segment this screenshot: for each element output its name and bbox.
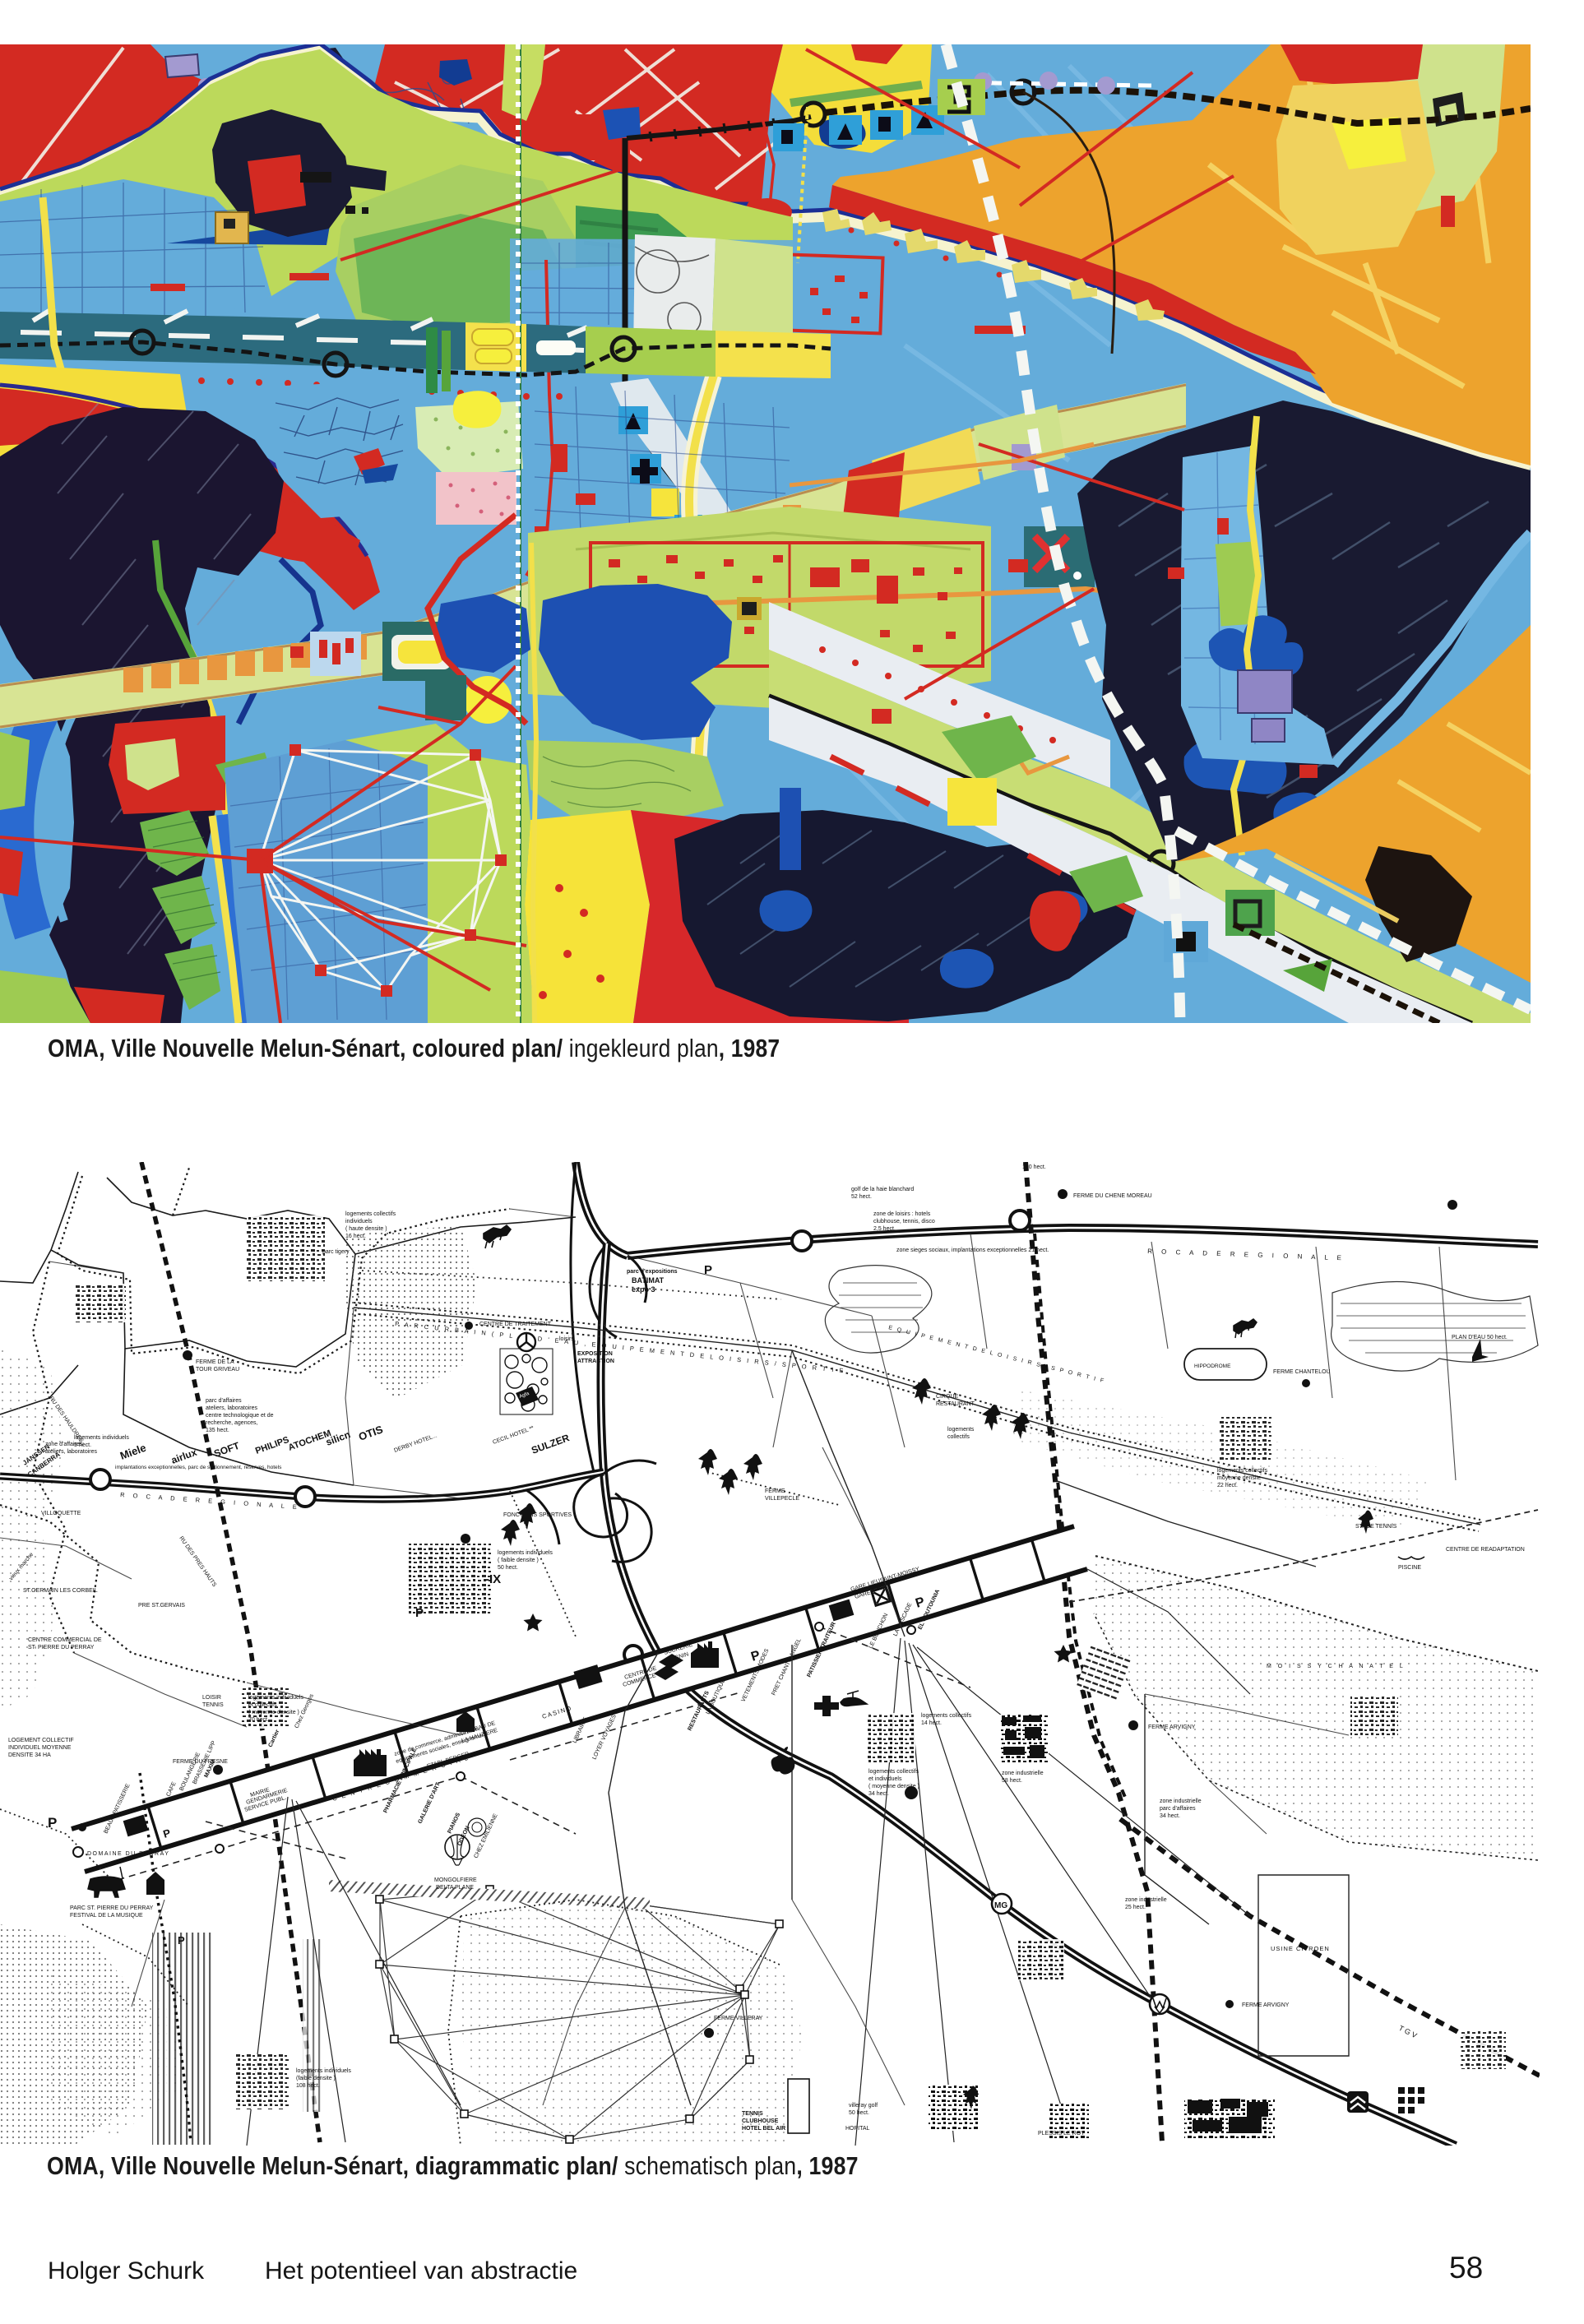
svg-text:52 hect.: 52 hect. <box>851 1194 872 1200</box>
svg-text:58 hect.: 58 hect. <box>1002 1778 1022 1784</box>
svg-text:logements collectifs: logements collectifs <box>921 1713 972 1719</box>
svg-text:VILLEPECLE: VILLEPECLE <box>765 1496 799 1502</box>
svg-text:golf de la haie blanchard: golf de la haie blanchard <box>851 1187 914 1192</box>
svg-text:clubhouse, tennis, disco: clubhouse, tennis, disco <box>873 1219 935 1224</box>
svg-text:et individuels: et individuels <box>868 1776 902 1782</box>
svg-text:( moyenne densite ): ( moyenne densite ) <box>248 1710 299 1715</box>
svg-text:TENNIS: TENNIS <box>202 1702 224 1708</box>
svg-text:( haute densite ): ( haute densite ) <box>345 1226 387 1232</box>
svg-text:34 hect.: 34 hect. <box>868 1791 889 1797</box>
svg-text:parc d'affaires: parc d'affaires <box>206 1398 242 1404</box>
svg-text:ateliers, laboratoires: ateliers, laboratoires <box>206 1405 258 1411</box>
svg-text:DOMAINE DU PERRAY: DOMAINE DU PERRAY <box>87 1851 169 1857</box>
svg-text:CIRQUE: CIRQUE <box>936 1394 959 1400</box>
svg-text:moyenne densite: moyenne densite <box>1217 1475 1261 1481</box>
svg-text:loisirs: loisirs <box>559 1336 574 1342</box>
svg-text:HOPITAL: HOPITAL <box>845 2126 870 2132</box>
svg-text:HOTEL BEL AIR ***: HOTEL BEL AIR *** <box>742 2126 794 2132</box>
svg-text:logements individuels: logements individuels <box>296 2068 351 2074</box>
svg-text:M O I S S Y C H A N A T E L: M O I S S Y C H A N A T E L <box>1267 1664 1406 1669</box>
svg-text:INDIVIDUEL MOYENNE: INDIVIDUEL MOYENNE <box>8 1745 72 1751</box>
svg-text:centre technologique et de: centre technologique et de <box>206 1413 274 1419</box>
svg-text:EXPOSITION: EXPOSITION <box>577 1351 613 1357</box>
svg-text:DELTA PLANE: DELTA PLANE <box>436 1885 474 1891</box>
svg-text:PISCINE: PISCINE <box>1398 1565 1421 1571</box>
svg-text:FERME DE LA: FERME DE LA <box>196 1359 234 1365</box>
svg-text:logements collectifs: logements collectifs <box>868 1769 919 1775</box>
svg-text:34 hect.: 34 hect. <box>1160 1813 1180 1819</box>
svg-text:14 hect.: 14 hect. <box>921 1720 942 1726</box>
svg-text:PARC ST. PIERRE DU PERRAY: PARC ST. PIERRE DU PERRAY <box>70 1905 154 1911</box>
svg-text:DENSITE 34 HA: DENSITE 34 HA <box>8 1752 51 1758</box>
svg-text:parc d'expositions: parc d'expositions <box>627 1269 678 1275</box>
svg-text:FERME DU FRESNE: FERME DU FRESNE <box>173 1759 228 1765</box>
svg-text:FERME CHANTELOU: FERME CHANTELOU <box>1273 1369 1331 1375</box>
svg-text:ateliers, laboratoires: ateliers, laboratoires <box>45 1449 98 1455</box>
svg-text:25 hect.: 25 hect. <box>1125 1905 1146 1910</box>
svg-text:parc d'affaires: parc d'affaires <box>1160 1806 1196 1812</box>
svg-text:FONCTIONS SPORTIVES: FONCTIONS SPORTIVES <box>503 1512 572 1518</box>
svg-text:HIPPODROME: HIPPODROME <box>1194 1363 1231 1369</box>
svg-text:ST.GERMAIN LES CORBEIL: ST.GERMAIN LES CORBEIL <box>23 1588 98 1594</box>
svg-text:FERME DU CHENE MOREAU: FERME DU CHENE MOREAU <box>1073 1193 1152 1199</box>
svg-text:VILLOQUETTE: VILLOQUETTE <box>41 1511 81 1516</box>
svg-text:MONGOLFIERE: MONGOLFIERE <box>434 1877 477 1883</box>
svg-text:LOGEMENT COLLECTIF: LOGEMENT COLLECTIF <box>8 1738 74 1743</box>
svg-text:PLAN D'EAU 50 hect.: PLAN D'EAU 50 hect. <box>1452 1335 1508 1340</box>
svg-text:FERME ARVIGNY: FERME ARVIGNY <box>1242 2002 1290 2008</box>
svg-text:CENTRE DE TRAITEMENT: CENTRE DE TRAITEMENT <box>479 1322 552 1327</box>
svg-text:PRE ST.GERVAIS: PRE ST.GERVAIS <box>138 1603 185 1609</box>
svg-text:collectifs: collectifs <box>947 1434 970 1440</box>
svg-text:USINE CITROEN: USINE CITROEN <box>1271 1945 1330 1952</box>
svg-text:villeray golf: villeray golf <box>849 2103 878 2109</box>
svg-text:PLESSIS LE ROY: PLESSIS LE ROY <box>1038 2131 1085 2137</box>
svg-text:TOUR GRIVEAU: TOUR GRIVEAU <box>196 1367 239 1373</box>
svg-text:108 hect.: 108 hect. <box>296 2083 320 2089</box>
svg-text:MG: MG <box>994 1901 1007 1910</box>
svg-text:FERME ARVIGNY: FERME ARVIGNY <box>1148 1724 1196 1730</box>
svg-text:22 hect.: 22 hect. <box>1217 1483 1238 1488</box>
svg-text:( moyenne densite ): ( moyenne densite ) <box>868 1784 919 1789</box>
svg-text:50 hect.: 50 hect. <box>498 1565 518 1571</box>
svg-text:2,5 hect.: 2,5 hect. <box>873 1226 896 1232</box>
svg-text:100 hect.: 100 hect. <box>1022 1164 1046 1170</box>
svg-text:135 hect.: 135 hect. <box>206 1428 229 1433</box>
svg-text:logements collectifs: logements collectifs <box>345 1211 396 1217</box>
svg-text:RESTAURANT: RESTAURANT <box>936 1401 975 1407</box>
svg-text:parc tigery: parc tigery <box>322 1249 350 1255</box>
svg-text:CLUBHOUSE: CLUBHOUSE <box>742 2118 779 2124</box>
svg-text:16 hect.: 16 hect. <box>345 1234 366 1239</box>
svg-text:zone de loisirs : hotels: zone de loisirs : hotels <box>873 1211 931 1217</box>
svg-text:-IX: -IX <box>485 1572 501 1586</box>
svg-text:ATTRACTION: ATTRACTION <box>577 1359 614 1364</box>
svg-text:recherche, agences,: recherche, agences, <box>206 1420 257 1426</box>
svg-text:CENTRE DE READAPTATION: CENTRE DE READAPTATION <box>1446 1547 1525 1553</box>
svg-text:zone industrielle: zone industrielle <box>1160 1799 1202 1804</box>
svg-text:zone industrielle: zone industrielle <box>1002 1771 1044 1776</box>
svg-text:70 hect.: 70 hect. <box>248 1717 269 1723</box>
svg-text:FESTIVAL DE LA MUSIQUE: FESTIVAL DE LA MUSIQUE <box>70 1913 143 1919</box>
svg-text:individuels: individuels <box>345 1219 373 1224</box>
svg-text:logements: logements <box>947 1427 975 1433</box>
svg-text:logements collectifs: logements collectifs <box>1217 1468 1268 1474</box>
svg-text:logements individuels: logements individuels <box>498 1550 553 1556</box>
svg-text:expo 3: expo 3 <box>632 1285 655 1294</box>
svg-text:zone industrielle: zone industrielle <box>1125 1897 1167 1903</box>
svg-text:TENNIS: TENNIS <box>742 2111 763 2117</box>
svg-text:5 hect.: 5 hect. <box>74 1442 91 1448</box>
svg-text:FERME VILLERAY: FERME VILLERAY <box>714 2016 763 2021</box>
svg-text:BATIMAT: BATIMAT <box>632 1276 665 1285</box>
svg-text:ST. PIERRE DU PERRAY: ST. PIERRE DU PERRAY <box>28 1645 95 1650</box>
svg-text:(faible densite ): (faible densite ) <box>296 2076 336 2081</box>
svg-text:P: P <box>415 1606 424 1620</box>
svg-text:CENTRE COMMERCIAL DE: CENTRE COMMERCIAL DE <box>28 1637 102 1643</box>
svg-text:et collectifs: et collectifs <box>248 1702 277 1708</box>
svg-text:P: P <box>178 1934 185 1947</box>
svg-text:LOISIR: LOISIR <box>202 1695 221 1701</box>
svg-text:implantations exceptionnelles,: implantations exceptionnelles, parc de s… <box>115 1465 282 1470</box>
svg-text:( faible densite ): ( faible densite ) <box>498 1558 539 1563</box>
svg-text:50 hect.: 50 hect. <box>849 2110 869 2116</box>
